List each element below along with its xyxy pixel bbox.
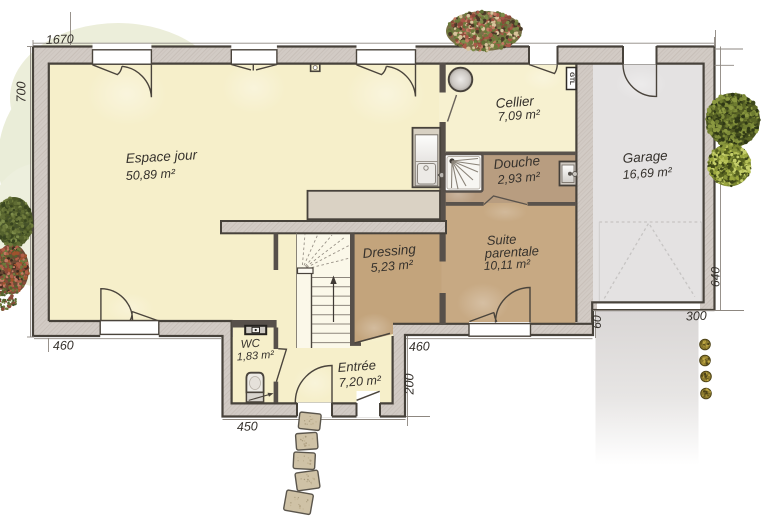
svg-text:700: 700 — [15, 82, 29, 103]
svg-text:GTL: GTL — [568, 72, 575, 85]
svg-text:Garage: Garage — [622, 148, 668, 166]
svg-text:460: 460 — [409, 339, 430, 354]
svg-text:200: 200 — [403, 374, 417, 396]
svg-text:1670: 1670 — [46, 32, 74, 47]
svg-text:450: 450 — [237, 419, 258, 434]
svg-text:460: 460 — [53, 338, 74, 353]
svg-text:60: 60 — [590, 315, 604, 329]
svg-text:50,89 m²: 50,89 m² — [125, 166, 176, 183]
svg-text:640: 640 — [709, 267, 723, 287]
svg-text:300: 300 — [686, 309, 707, 324]
svg-text:10,11 m²: 10,11 m² — [483, 257, 531, 273]
svg-text:WC: WC — [240, 338, 261, 351]
svg-text:Entrée: Entrée — [337, 357, 376, 375]
